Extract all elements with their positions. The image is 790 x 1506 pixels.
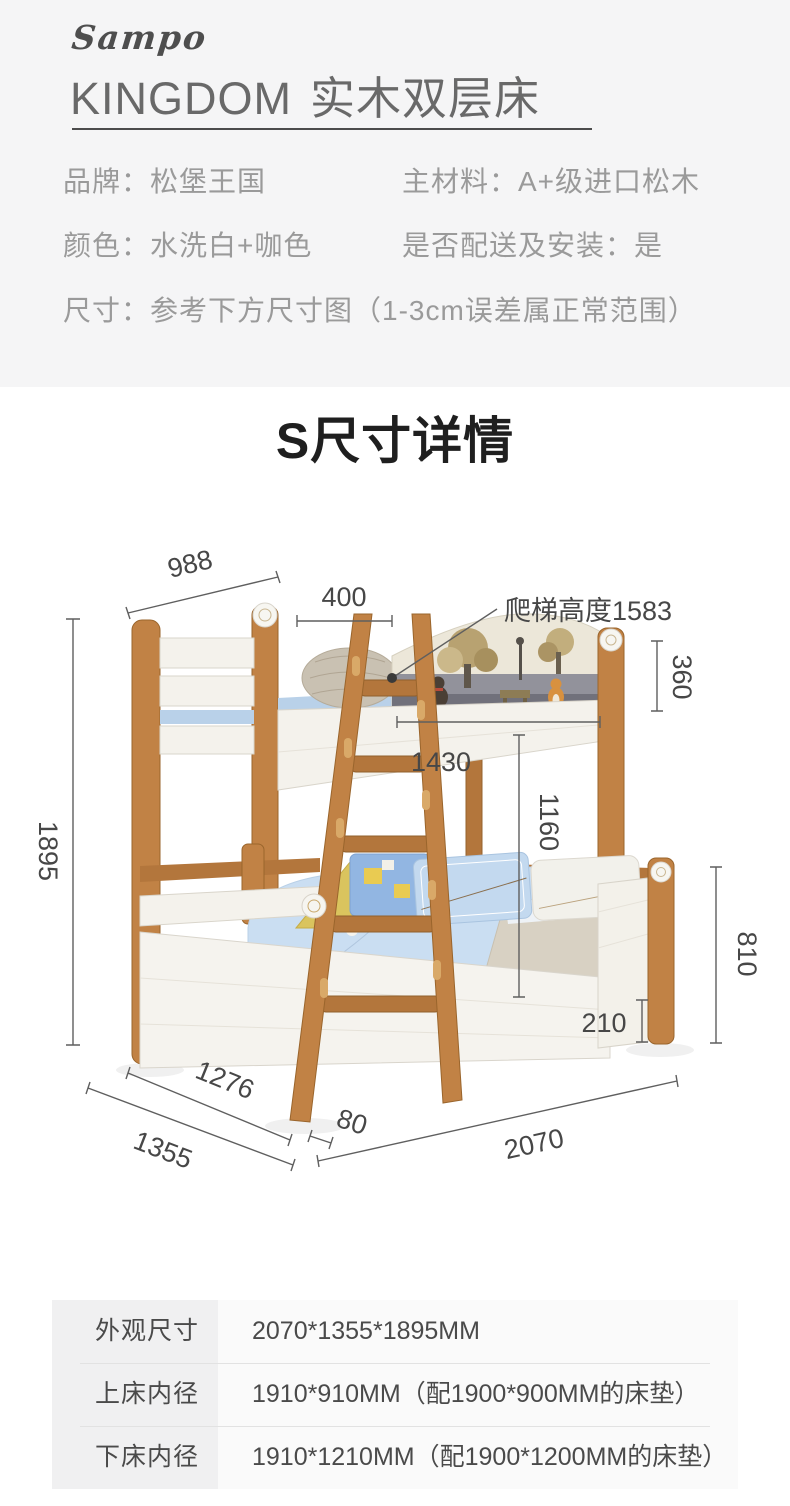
- row-label: 下床内径: [95, 1426, 199, 1489]
- row-label: 外观尺寸: [95, 1300, 199, 1363]
- page-title: KINGDOM实木双层床: [70, 62, 540, 127]
- dim-label-400: 400: [321, 582, 366, 612]
- table-row: 上床内径 1910*910MM（配1900*900MM的床垫）: [52, 1363, 738, 1426]
- spec-size-note: 尺寸：参考下方尺寸图（1-3cm误差属正常范围）: [63, 289, 697, 329]
- title-underline: [72, 128, 592, 130]
- lower-bedding: [248, 864, 654, 1002]
- table-row: 外观尺寸 2070*1355*1895MM: [52, 1300, 738, 1363]
- spec-color: 颜色：水洗白+咖色: [63, 224, 312, 264]
- row-label: 上床内径: [95, 1363, 199, 1426]
- dim-label-210: 210: [581, 1008, 626, 1038]
- dim-label-ladder-height: 爬梯高度1583: [504, 596, 672, 626]
- dim-label-1895: 1895: [33, 821, 63, 881]
- dim-label-360: 360: [667, 654, 697, 699]
- size-table: 外观尺寸 2070*1355*1895MM 上床内径 1910*910MM（配1…: [52, 1300, 738, 1489]
- row-value: 1910*910MM（配1900*900MM的床垫）: [252, 1363, 699, 1426]
- spec-delivery: 是否配送及安装：是: [402, 224, 663, 264]
- dim-label-1430: 1430: [411, 747, 471, 777]
- dim-label-1355: 1355: [130, 1125, 197, 1175]
- dim-label-810: 810: [732, 931, 762, 976]
- spec-material: 主材料：A+级进口松木: [402, 160, 700, 200]
- print-pillow: [350, 854, 430, 916]
- headboard-art-panel: [392, 614, 610, 712]
- spec-brand: 品牌：松堡王国: [63, 160, 266, 200]
- brand-logo-name: KINGDOM: [70, 73, 292, 124]
- upper-pillow: [302, 648, 398, 708]
- table-row: 下床内径 1910*1210MM（配1900*1200MM的床垫）: [52, 1426, 738, 1489]
- dimension-annotations: 988 400 爬梯高度1583 360 1430 1160 1895 810 …: [33, 544, 762, 1175]
- yellow-pillow: [296, 862, 400, 928]
- dim-label-80: 80: [333, 1103, 371, 1141]
- dim-label-1276: 1276: [192, 1055, 259, 1105]
- dim-label-1160: 1160: [534, 793, 564, 851]
- dim-label-2070: 2070: [501, 1123, 566, 1165]
- bed-ladder: [290, 614, 462, 1122]
- row-value: 2070*1355*1895MM: [252, 1300, 480, 1363]
- blue-pillow: [413, 852, 532, 926]
- brand-logo-script: Sampo: [70, 18, 209, 57]
- product-name: 实木双层床: [310, 73, 540, 124]
- white-pillow: [531, 855, 642, 921]
- section-title: S尺寸详情: [0, 401, 790, 473]
- bed-illustration: [116, 603, 694, 1134]
- dim-label-988: 988: [165, 544, 216, 584]
- product-spec-section: Sampo KINGDOM实木双层床 品牌：松堡王国 主材料：A+级进口松木 颜…: [0, 0, 790, 387]
- row-value: 1910*1210MM（配1900*1200MM的床垫）: [252, 1426, 727, 1489]
